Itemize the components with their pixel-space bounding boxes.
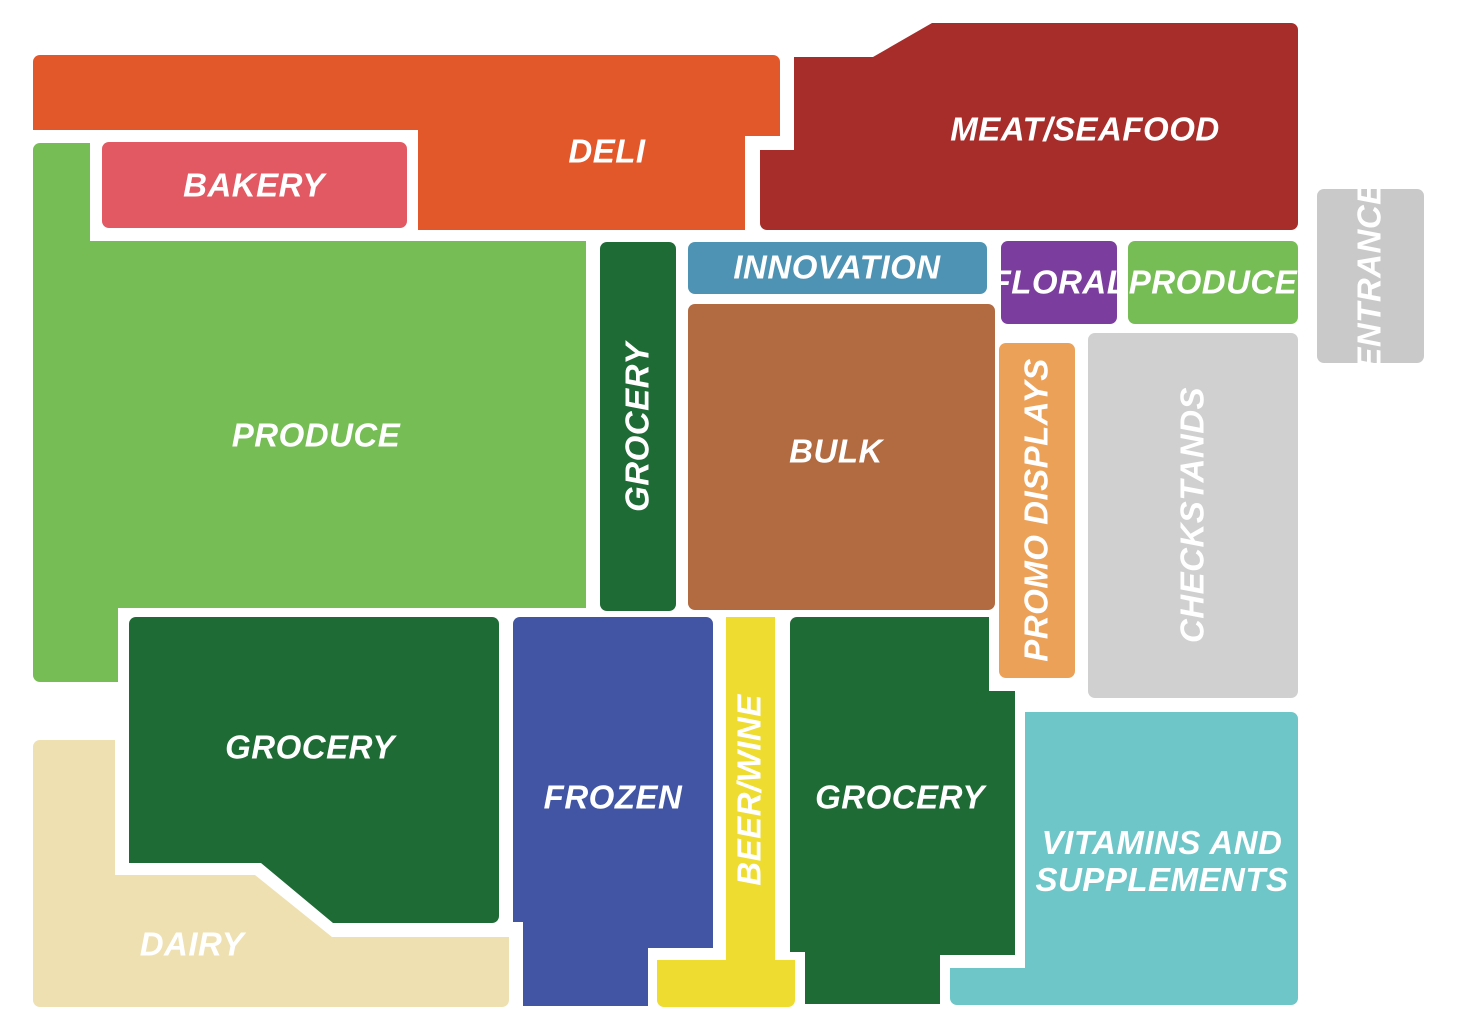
region-promo-displays: PROMO DISPLAYS bbox=[999, 343, 1075, 678]
region-innovation: INNOVATION bbox=[688, 242, 987, 294]
region-innovation-label: INNOVATION bbox=[733, 250, 940, 287]
region-vitamins-label: VITAMINS AND SUPPLEMENTS bbox=[1012, 825, 1312, 899]
region-frozen-label: FROZEN bbox=[544, 780, 683, 817]
region-checkstands: CHECKSTANDS bbox=[1088, 333, 1298, 698]
region-dairy-label: DAIRY bbox=[140, 927, 245, 964]
region-promo-displays-label: PROMO DISPLAYS bbox=[1019, 358, 1056, 661]
region-checkstands-label: CHECKSTANDS bbox=[1175, 387, 1212, 643]
region-produce-entry: PRODUCE bbox=[1128, 241, 1298, 324]
region-floral: FLORAL bbox=[1001, 241, 1117, 324]
region-grocery-aisle-label: GROCERY bbox=[620, 342, 657, 512]
region-produce-entry-label: PRODUCE bbox=[1129, 265, 1298, 302]
region-grocery-left-label: GROCERY bbox=[225, 730, 395, 767]
region-bulk-label: BULK bbox=[789, 434, 883, 471]
region-deli-label: DELI bbox=[568, 134, 645, 171]
region-meat-seafood: MEAT/SEAFOOD bbox=[760, 23, 1298, 230]
region-grocery-right-label: GROCERY bbox=[815, 780, 985, 817]
region-bakery-label: BAKERY bbox=[183, 168, 325, 205]
region-entrance: ENTRANCE bbox=[1317, 189, 1424, 363]
region-floral-label: FLORAL bbox=[991, 265, 1128, 302]
region-bakery: BAKERY bbox=[102, 142, 407, 228]
region-bulk: BULK bbox=[688, 304, 995, 610]
region-produce-main-label: PRODUCE bbox=[232, 418, 401, 455]
region-entrance-label: ENTRANCE bbox=[1352, 182, 1389, 369]
region-frozen: FROZEN bbox=[513, 617, 713, 1006]
floor-plan-canvas: DELI BAKERY MEAT/SEAFOOD PRODUCE GROCERY… bbox=[0, 0, 1460, 1036]
region-meat-seafood-label: MEAT/SEAFOOD bbox=[950, 112, 1219, 149]
region-beer-wine-label: BEER/WINE bbox=[732, 694, 769, 886]
region-grocery-right: GROCERY bbox=[790, 617, 1015, 1004]
region-grocery-aisle: GROCERY bbox=[600, 242, 676, 611]
